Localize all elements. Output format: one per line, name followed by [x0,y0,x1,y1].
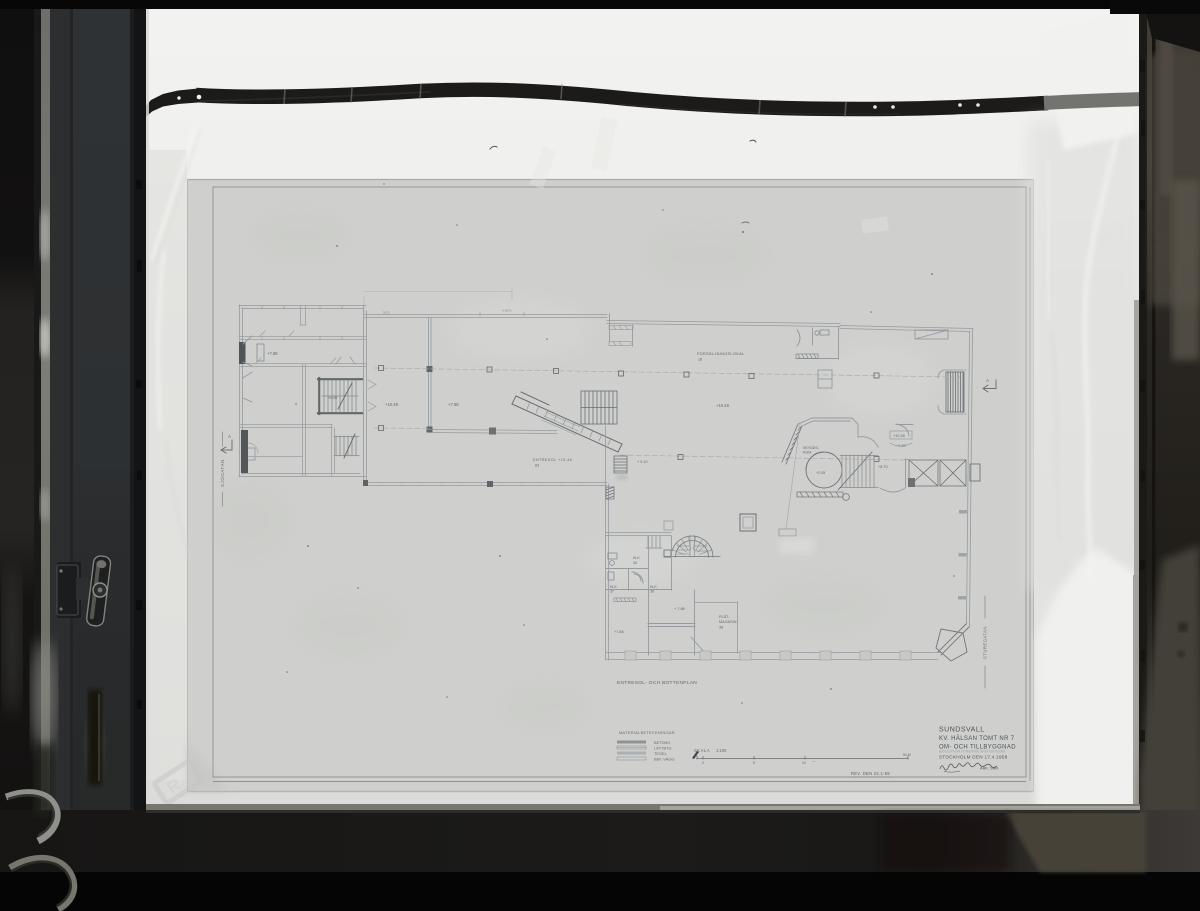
svg-text:35: 35 [633,561,637,565]
svg-text:+10.48: +10.48 [716,403,730,408]
svg-text:ENTRESOL- OCH BOTTENPLAN: ENTRESOL- OCH BOTTENPLAN [617,680,697,686]
svg-text:BERGSTRÖM FÖRENADE ARKITEKTERN: BERGSTRÖM FÖRENADE ARKITEKTERNA [939,750,1006,754]
svg-text:36: 36 [650,590,654,594]
svg-text:RUM: RUM [803,451,811,455]
svg-text:SKYDDS-: SKYDDS- [803,446,820,450]
svg-text:+5.30: +5.30 [327,395,338,400]
svg-text:A: A [228,434,231,439]
svg-text:KLK: KLK [633,556,640,560]
svg-text:TEGEL: TEGEL [654,751,668,756]
svg-text:38: 38 [719,626,723,630]
svg-text:A-5071: A-5071 [502,309,512,313]
svg-text:+10.48: +10.48 [893,434,905,438]
svg-text:ENTRESOL +10.48: ENTRESOL +10.48 [533,458,572,462]
svg-text:50 M: 50 M [903,753,911,757]
svg-text:37: 37 [610,590,614,594]
svg-text:+7.88: +7.88 [614,630,624,634]
svg-text:10: 10 [802,761,806,765]
svg-text:5: 5 [753,761,755,765]
svg-text:BEF. VÄGG: BEF. VÄGG [654,757,675,762]
svg-text:+ 7.88: + 7.88 [674,607,685,611]
svg-text:STUREGATAN: STUREGATAN [983,626,988,659]
svg-text:PLÅT-: PLÅT- [719,614,730,619]
svg-text:LÄTTBTG: LÄTTBTG [654,746,672,751]
svg-text:0: 0 [702,761,704,765]
svg-text:BETONG: BETONG [654,740,670,745]
svg-text:STOCKHOLM DEN 17.4.1958: STOCKHOLM DEN 17.4.1958 [939,755,1008,760]
svg-text:MATERIALBETECKNINGAR: MATERIALBETECKNINGAR [619,730,675,735]
svg-text:18: 18 [698,358,702,362]
svg-text:+8.70: +8.70 [878,465,888,469]
svg-text:FÖRSÄLJNINGSLOKAL: FÖRSÄLJNINGSLOKAL [697,351,745,356]
svg-text:5070: 5070 [383,311,390,315]
svg-text:A: A [986,378,989,383]
svg-text:+10.48: +10.48 [385,402,399,407]
svg-text:+ 9.10: + 9.10 [637,460,648,464]
svg-text:SJÖGATAN: SJÖGATAN [220,459,225,487]
svg-text:REV. DEN 22.1-59: REV. DEN 22.1-59 [851,771,890,776]
svg-text:SUNDSVALL: SUNDSVALL [939,727,985,734]
svg-text:+7.88: +7.88 [267,351,278,356]
svg-text:83: 83 [535,464,539,468]
svg-text:MAGASIN: MAGASIN [719,620,737,624]
svg-text:ARK. SAR.: ARK. SAR. [980,766,999,771]
svg-text:1:100: 1:100 [716,748,727,753]
svg-text:+7.88: +7.88 [448,402,459,407]
svg-text:+2.05: +2.05 [816,471,825,475]
svg-text:KLK: KLK [650,585,657,589]
svg-text:KV. HÄLSAN TOMT NR 7: KV. HÄLSAN TOMT NR 7 [939,735,1015,742]
svg-text:KLK: KLK [610,585,617,589]
